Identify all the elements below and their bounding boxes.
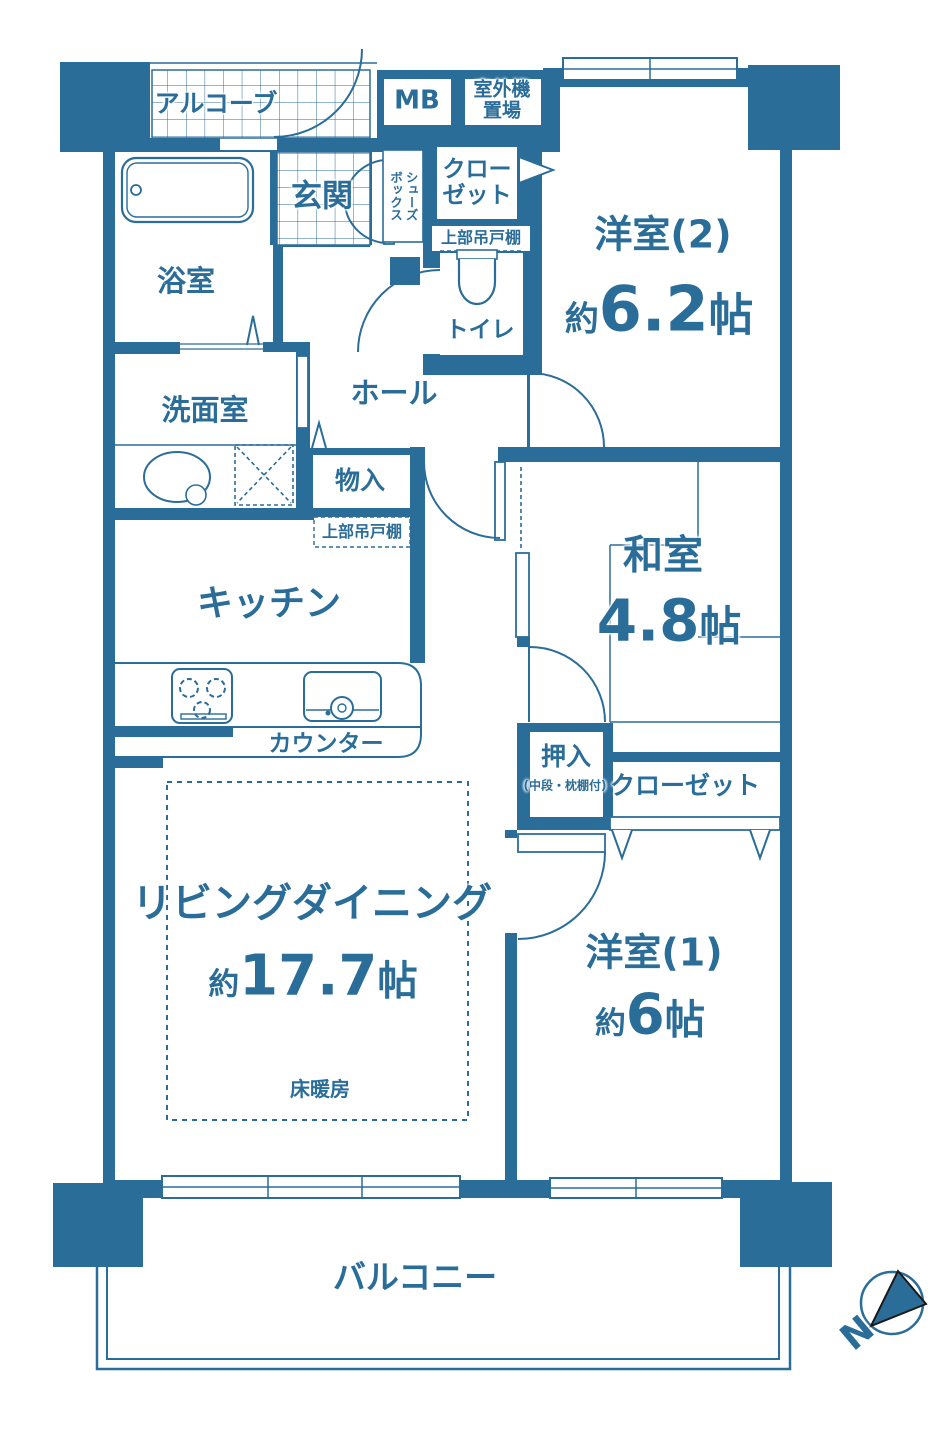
bedroom1-door-leaf bbox=[518, 834, 605, 852]
label-bedroom1-size: 約6帖 bbox=[595, 985, 705, 1048]
closet-door-v-mark bbox=[750, 830, 770, 858]
closet-door-v-mark bbox=[612, 830, 632, 858]
washitsu-door-arc bbox=[530, 647, 605, 722]
duct-pillar bbox=[390, 257, 420, 285]
label-kitchen: キッチン bbox=[197, 584, 341, 624]
bedroom1-size-prefix: 約 bbox=[595, 1006, 626, 1042]
label-upper-cabinet-toilet: 上部吊戸棚 bbox=[441, 229, 521, 247]
label-oshiire: 押入 bbox=[541, 743, 591, 771]
label-shoes-box-line2: ボックス bbox=[387, 171, 403, 221]
compass bbox=[861, 1271, 926, 1334]
washitsu-sliding-door bbox=[516, 553, 529, 637]
label-living-name: リビングダイニング bbox=[132, 882, 492, 927]
bath-door-pivot-mark bbox=[247, 316, 259, 345]
label-closet-north-line2: ゼット bbox=[443, 183, 512, 209]
sink-icon bbox=[304, 672, 381, 721]
label-hall: ホール bbox=[350, 377, 437, 409]
bedroom2-size-prefix: 約 bbox=[565, 299, 599, 339]
window-living-balcony bbox=[162, 1176, 460, 1198]
bedroom2-size-unit: 帖 bbox=[709, 289, 754, 341]
stove-icon bbox=[172, 669, 232, 723]
living-size-prefix: 約 bbox=[208, 967, 239, 1003]
label-washitsu-size: 4.8帖 bbox=[597, 589, 742, 654]
closet-folding-door-track bbox=[610, 817, 780, 830]
label-genkan: 玄関 bbox=[291, 180, 353, 215]
bathtub-icon bbox=[122, 158, 253, 222]
label-balcony: バルコニー bbox=[333, 1260, 497, 1297]
label-oshiire-note: (中段・枕棚付) bbox=[524, 779, 607, 792]
label-living-size: 約17.7帖 bbox=[208, 946, 417, 1009]
washroom-door-pivot-mark bbox=[312, 423, 326, 448]
washitsu-size-value: 4.8 bbox=[597, 587, 700, 655]
window-bedroom2-north bbox=[563, 58, 737, 80]
bedroom2-size-value: 6.2 bbox=[599, 272, 709, 345]
hall-door-arc bbox=[424, 462, 500, 538]
label-toilet: トイレ bbox=[446, 318, 515, 344]
label-storage: 物入 bbox=[335, 467, 385, 495]
washroom-door-leaf bbox=[297, 356, 308, 428]
label-washroom: 洗面室 bbox=[161, 394, 248, 426]
label-closet-north-line1: クロー bbox=[443, 157, 512, 183]
bedroom2-door-arc bbox=[530, 373, 604, 447]
label-outdoor-unit-line1: 室外機 bbox=[473, 80, 530, 101]
label-bedroom2-size: 約6.2帖 bbox=[565, 274, 754, 343]
label-mb: MB bbox=[394, 86, 440, 115]
label-shoes-box: シューズ ボックス bbox=[387, 171, 418, 221]
window-bedroom1-balcony bbox=[550, 1178, 722, 1198]
washer-space-icon bbox=[235, 445, 293, 505]
label-outdoor-unit-line2: 置場 bbox=[473, 101, 530, 122]
washbasin-icon bbox=[115, 445, 296, 505]
living-size-value: 17.7 bbox=[239, 944, 377, 1009]
floor-plan-drawing bbox=[0, 0, 931, 1434]
bedroom1-door-arc bbox=[518, 852, 605, 939]
label-outdoor-unit: 室外機 置場 bbox=[473, 80, 530, 123]
label-closet-north: クロー ゼット bbox=[443, 157, 512, 209]
label-washitsu-name: 和室 bbox=[623, 534, 703, 579]
label-closet-south: クローゼット bbox=[610, 772, 760, 800]
label-bedroom2-name: 洋室(2) bbox=[594, 214, 731, 257]
bedroom1-size-value: 6 bbox=[626, 983, 665, 1048]
label-floor-heating: 床暖房 bbox=[290, 1078, 350, 1100]
label-bedroom1-name: 洋室(1) bbox=[585, 932, 722, 975]
label-counter: カウンター bbox=[269, 732, 384, 758]
toilet-icon bbox=[457, 250, 497, 304]
label-alcove: アルコーブ bbox=[155, 90, 278, 118]
label-upper-cabinet-kitchen: 上部吊戸棚 bbox=[322, 523, 402, 541]
label-shoes-box-line1: シューズ bbox=[403, 171, 419, 221]
washitsu-size-unit: 帖 bbox=[700, 602, 742, 651]
living-size-unit: 帖 bbox=[377, 958, 417, 1005]
bedroom1-size-unit: 帖 bbox=[665, 997, 705, 1044]
label-bathroom: 浴室 bbox=[157, 265, 215, 297]
hall-door-leaf bbox=[495, 462, 505, 540]
floor-plan: アルコーブ MB 室外機 置場 玄関 シューズ ボックス クロー ゼット 上部吊… bbox=[0, 0, 931, 1434]
